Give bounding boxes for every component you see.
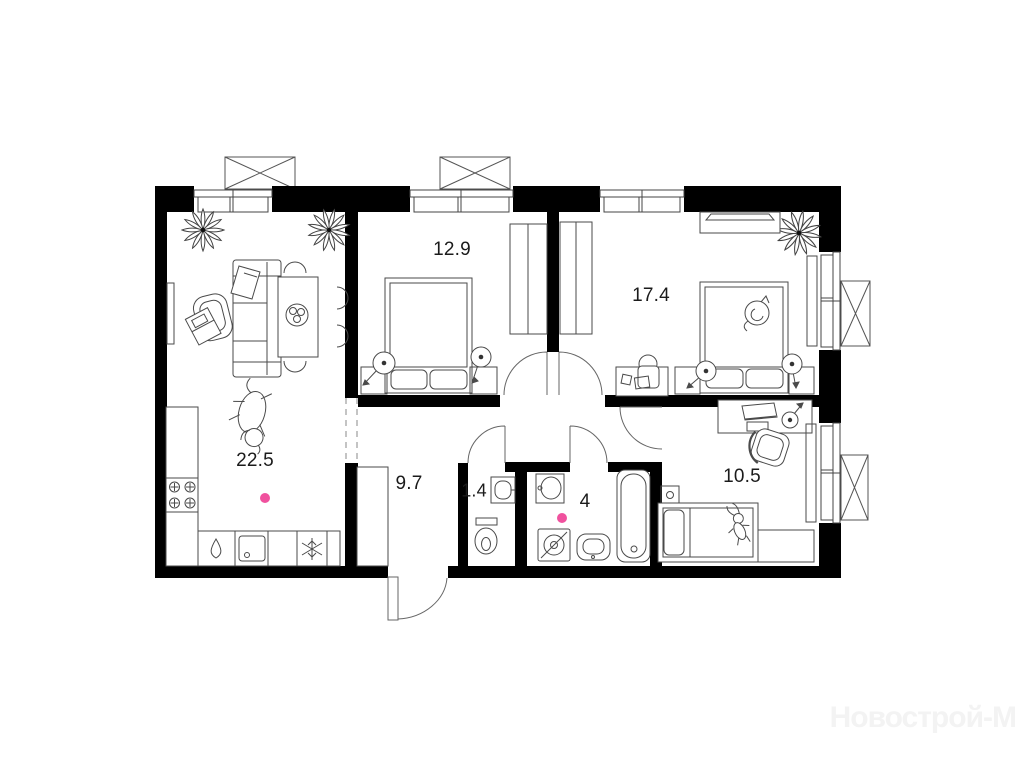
bathroom-sink: [536, 474, 564, 503]
window: [410, 190, 513, 212]
ac-unit-icon: [440, 157, 510, 189]
lamp-icon: [471, 347, 491, 383]
living-room-furniture: [166, 260, 348, 566]
tv: [167, 283, 174, 344]
window: [821, 423, 840, 523]
dog: [221, 375, 279, 454]
washing-machine-icon: [538, 529, 570, 561]
door-bedroom-small: [504, 352, 547, 395]
wall-light: [661, 486, 679, 504]
plant-icon: [182, 209, 224, 251]
dining-table: [278, 277, 318, 357]
virtual-opening: [346, 398, 357, 463]
door-bathroom: [570, 426, 607, 463]
bathtub: [617, 470, 650, 562]
radiator: [806, 424, 816, 522]
point-marker: [260, 493, 270, 503]
toilet: [475, 518, 497, 554]
ac-unit-icon: [841, 281, 870, 346]
point-marker: [557, 513, 567, 523]
wardrobe: [510, 224, 547, 334]
sofa: [231, 260, 281, 377]
ac-unit-icon: [841, 455, 868, 520]
door-wc: [468, 426, 505, 463]
wardrobe: [560, 222, 592, 334]
watermark: Новострой-М: [830, 701, 1016, 735]
dresser: [616, 355, 668, 396]
door-kids-room: [620, 407, 662, 449]
radiator: [807, 256, 817, 346]
room-label-corridor: 9.7: [395, 473, 422, 495]
double-bed: [385, 278, 472, 393]
room-label-wc: 1.4: [461, 481, 487, 502]
window: [194, 190, 272, 212]
tv-console: [700, 212, 780, 233]
floor-plan-canvas: [0, 0, 1024, 768]
floorplan-page: 22.5 12.9 17.4 9.7 1.4 4 10.5 Новострой-…: [0, 0, 1024, 768]
bedroom-master-furniture: [560, 212, 817, 396]
stove: [166, 478, 198, 512]
window: [600, 190, 684, 212]
room-label-bedroom-small: 12.9: [433, 239, 471, 261]
room-label-bedroom-master: 17.4: [632, 285, 670, 307]
bench: [758, 530, 814, 562]
ac-unit-icon: [225, 157, 295, 189]
entrance-door: [388, 577, 447, 620]
window: [821, 252, 840, 350]
wc-sink: [491, 477, 515, 503]
corridor-furniture: [357, 467, 388, 566]
bathroom-fixtures: [536, 470, 650, 562]
room-label-bathroom: 4: [580, 491, 591, 513]
bathroom-sink: [577, 534, 610, 560]
room-label-kids-room: 10.5: [723, 466, 761, 488]
room-label-living-kitchen: 22.5: [236, 450, 274, 472]
door-bedroom-master: [559, 352, 602, 395]
closet: [357, 467, 388, 566]
